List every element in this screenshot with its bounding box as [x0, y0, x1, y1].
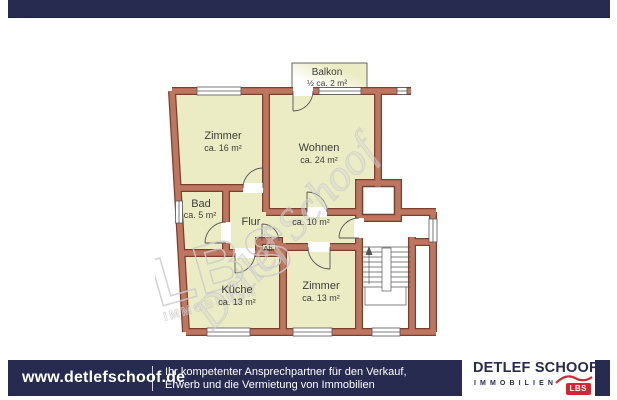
flyer-page: LBS IMMOBILIEN Detlef Schoof Balkon ½ ca…: [0, 0, 617, 400]
floorplan-drawing: LBS IMMOBILIEN Detlef Schoof Balkon ½ ca…: [155, 55, 445, 347]
lbs-badge: LBS: [566, 383, 592, 395]
company-logo-subtitle: IMMOBILIEN: [474, 380, 557, 387]
kueche-area: ca. 13 m²: [218, 297, 256, 307]
bad-label: Bad: [191, 198, 211, 210]
ab-label: Ab.: [263, 244, 274, 253]
footer-slogan-line2: Erwerb und die Vermietung von Immobilien: [165, 379, 407, 392]
elevator-shaft: [363, 187, 394, 214]
kueche-label: Küche: [221, 284, 252, 296]
zimmer13-area: ca. 13 m²: [302, 293, 340, 303]
zimmer13-label: Zimmer: [302, 280, 340, 292]
footer-divider: [152, 366, 153, 391]
bad-area: ca. 5 m²: [184, 210, 217, 220]
top-accent-bar: [8, 0, 610, 18]
website-text: www.detlefschoof.de: [22, 360, 185, 396]
zimmer16-label: Zimmer: [204, 130, 242, 142]
balkon-label: Balkon: [312, 67, 343, 78]
balkon-area: ½ ca. 2 m²: [307, 78, 347, 88]
flur-area: ca. 10 m²: [292, 217, 330, 227]
wohnen-label: Wohnen: [299, 142, 340, 154]
wohnen-area: ca. 24 m²: [300, 155, 338, 165]
footer-slogan: Ihr kompetenter Ansprechpartner für den …: [165, 366, 407, 391]
zimmer16-area: ca. 16 m²: [204, 143, 242, 153]
flur-label: Flur: [242, 216, 261, 228]
staircase: [363, 246, 411, 305]
footer-slogan-line1: Ihr kompetenter Ansprechpartner für den …: [165, 366, 407, 379]
company-logo: DETLEF SCHOOF IMMOBILIEN LBS: [462, 356, 595, 398]
